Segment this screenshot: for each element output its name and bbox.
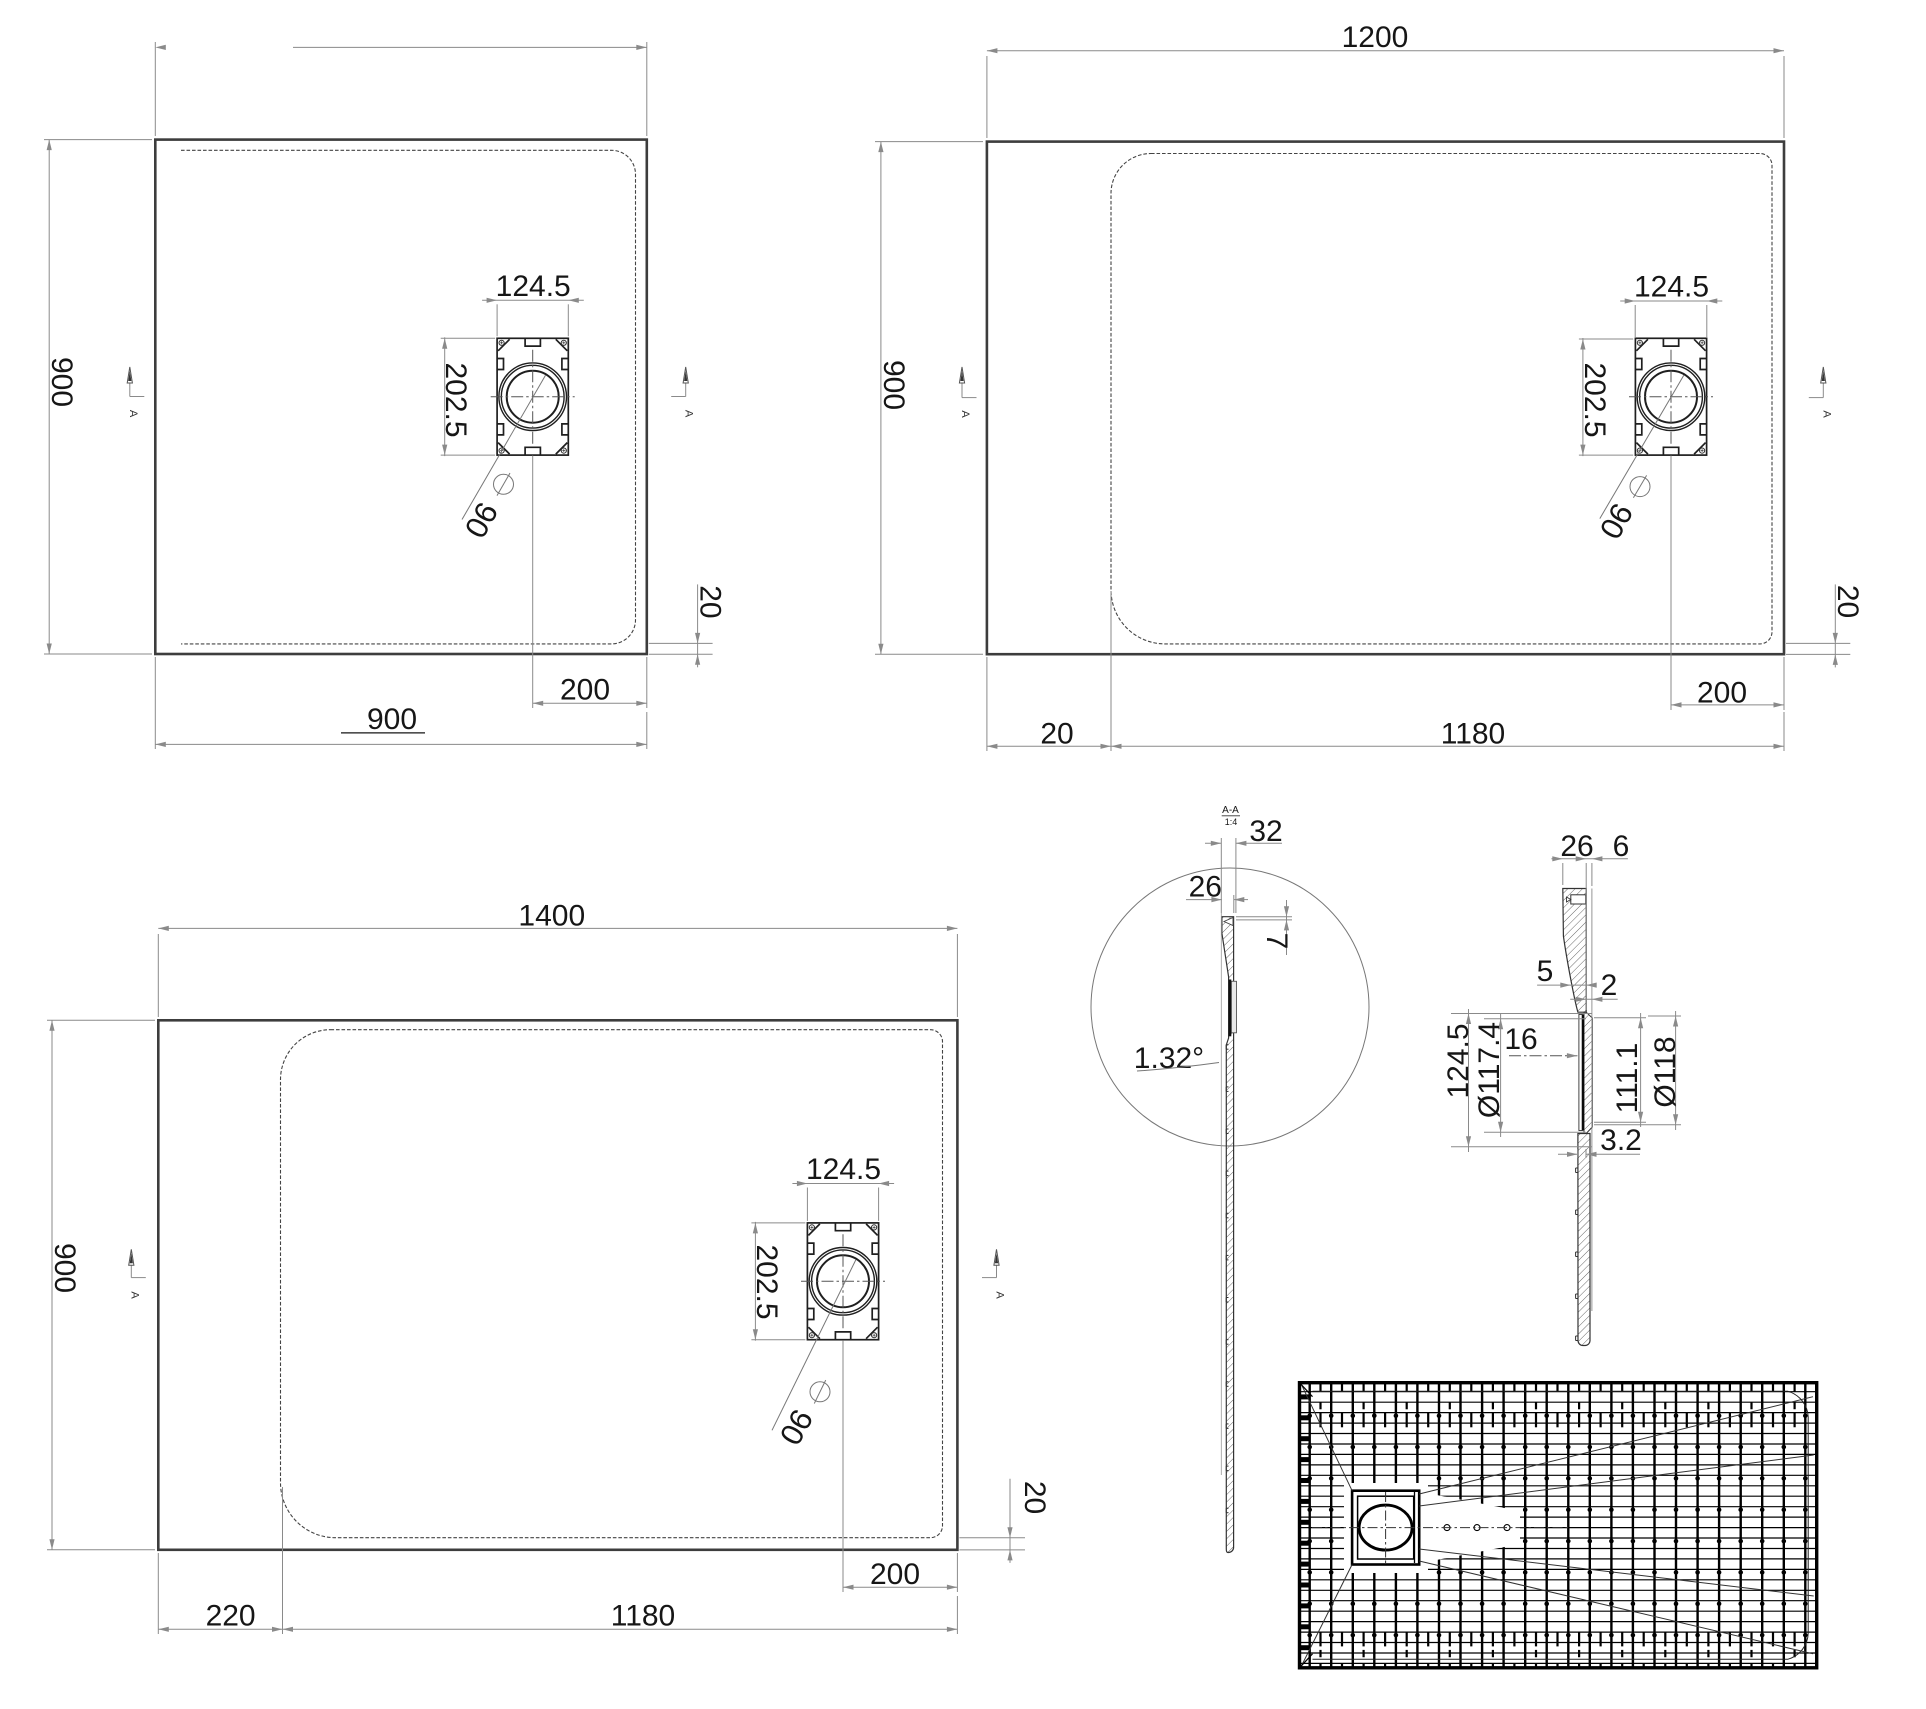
svg-text:111.1: 111.1 bbox=[1611, 1043, 1644, 1114]
svg-text:202.5: 202.5 bbox=[750, 1244, 783, 1319]
svg-text:124.5: 124.5 bbox=[496, 270, 571, 303]
svg-text:26: 26 bbox=[1189, 871, 1222, 904]
svg-text:Ø118: Ø118 bbox=[1649, 1036, 1682, 1107]
svg-text:124.5: 124.5 bbox=[1442, 1023, 1475, 1098]
svg-text:A: A bbox=[683, 410, 695, 418]
svg-text:7: 7 bbox=[1260, 933, 1293, 950]
svg-text:32: 32 bbox=[1249, 815, 1282, 848]
svg-text:1:4: 1:4 bbox=[1225, 817, 1238, 827]
svg-text:6: 6 bbox=[1613, 830, 1630, 863]
svg-text:20: 20 bbox=[1018, 1481, 1051, 1514]
svg-text:1180: 1180 bbox=[611, 1600, 676, 1633]
svg-text:20: 20 bbox=[1831, 585, 1864, 618]
svg-text:A: A bbox=[959, 410, 971, 418]
svg-text:900: 900 bbox=[45, 357, 78, 407]
svg-text:1180: 1180 bbox=[1441, 717, 1506, 750]
svg-text:3.2: 3.2 bbox=[1600, 1124, 1642, 1157]
svg-text:900: 900 bbox=[48, 1243, 81, 1293]
svg-text:1200: 1200 bbox=[1342, 21, 1409, 54]
svg-text:A: A bbox=[127, 410, 139, 418]
svg-text:200: 200 bbox=[1697, 676, 1747, 709]
svg-text:26: 26 bbox=[1560, 830, 1593, 863]
svg-text:5: 5 bbox=[1537, 955, 1554, 988]
svg-text:A: A bbox=[994, 1291, 1006, 1299]
svg-text:20: 20 bbox=[694, 585, 727, 618]
svg-text:202.5: 202.5 bbox=[439, 362, 472, 437]
svg-text:900: 900 bbox=[877, 360, 910, 410]
svg-text:16: 16 bbox=[1504, 1023, 1537, 1056]
svg-text:A-A: A-A bbox=[1222, 805, 1239, 816]
svg-text:2: 2 bbox=[1601, 969, 1618, 1002]
svg-text:20: 20 bbox=[1040, 717, 1073, 750]
svg-text:200: 200 bbox=[870, 1558, 920, 1591]
svg-text:1400: 1400 bbox=[518, 900, 585, 933]
svg-text:Ø117.4: Ø117.4 bbox=[1473, 1022, 1506, 1118]
svg-text:900: 900 bbox=[367, 703, 417, 736]
svg-text:220: 220 bbox=[206, 1600, 256, 1633]
svg-text:124.5: 124.5 bbox=[806, 1153, 881, 1186]
svg-text:124.5: 124.5 bbox=[1634, 271, 1709, 304]
svg-text:202.5: 202.5 bbox=[1578, 362, 1611, 437]
svg-text:200: 200 bbox=[560, 673, 610, 706]
svg-text:A: A bbox=[1820, 410, 1832, 418]
svg-text:A: A bbox=[128, 1291, 140, 1299]
